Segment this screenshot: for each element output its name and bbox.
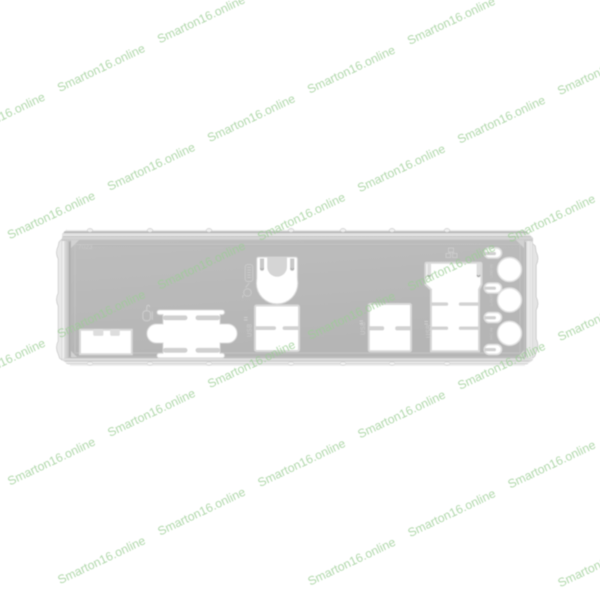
- svg-text:L-OUT: L-OUT: [489, 294, 494, 306]
- svg-text:LINE IN: LINE IN: [489, 264, 494, 278]
- svg-text:USB: USB: [248, 323, 254, 337]
- svg-text:MIC IN: MIC IN: [489, 328, 494, 340]
- svg-text:USB: USB: [427, 324, 433, 338]
- svg-text:7023: 7023: [78, 244, 93, 251]
